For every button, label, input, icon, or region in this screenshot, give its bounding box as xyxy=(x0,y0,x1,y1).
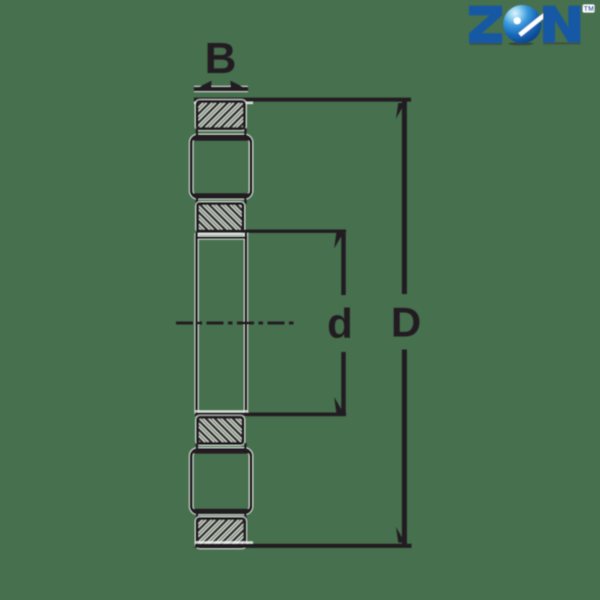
svg-text:TM: TM xyxy=(584,4,594,13)
svg-text:D: D xyxy=(391,299,421,346)
svg-text:d: d xyxy=(327,300,353,347)
svg-text:B: B xyxy=(205,34,237,83)
